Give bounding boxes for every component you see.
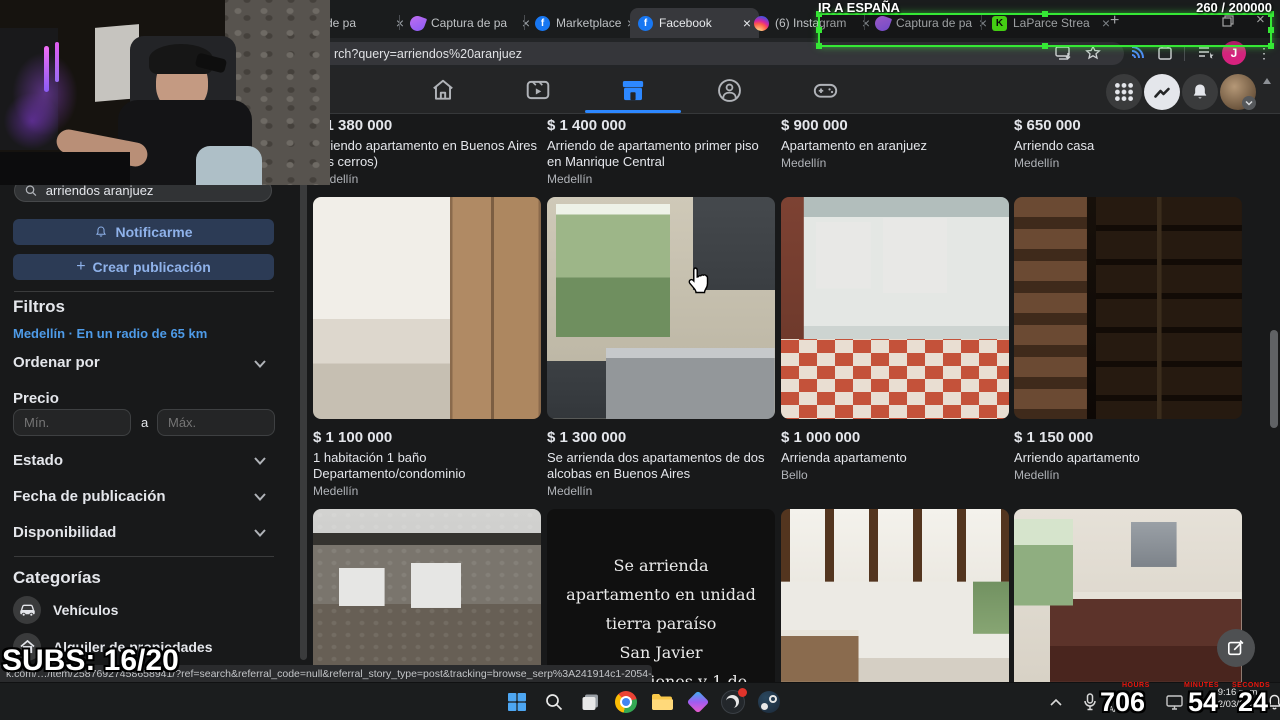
price-min-input[interactable] (13, 409, 131, 436)
taskbar-explorer-button[interactable] (648, 688, 676, 716)
disponibilidad-section[interactable]: Disponibilidad (13, 524, 116, 541)
tray-display-icon[interactable] (1160, 688, 1188, 716)
bell-outline-icon (94, 225, 108, 239)
listing-price: $ 1 150 000 (1014, 429, 1242, 447)
category-label: Vehículos (53, 602, 118, 618)
categories-title: Categorías (13, 568, 101, 588)
scroll-up-arrow[interactable] (1262, 72, 1272, 90)
sort-by-section[interactable]: Ordenar por (13, 354, 100, 371)
listing-title: 1 habitación 1 baño Departamento/condomi… (313, 450, 541, 482)
listing-title: Arriendo de apartamento primer piso en M… (547, 138, 775, 170)
steam-icon (758, 691, 780, 713)
listing-image[interactable] (313, 509, 541, 682)
tab-divider (399, 15, 400, 30)
listing-title: Arriendo casa (1014, 138, 1242, 154)
tab-facebook-active[interactable]: f Facebook × (630, 8, 759, 38)
nav-marketplace-tab-active[interactable] (585, 68, 681, 112)
selection-handle (816, 43, 822, 49)
knee-art (196, 146, 262, 185)
listing-card[interactable]: $ 1 380 000 Arriendo apartamento en Buen… (313, 117, 541, 186)
instagram-icon (754, 16, 769, 31)
tab-captura-2[interactable]: Captura de pa × (402, 8, 538, 38)
listing-image[interactable] (781, 197, 1009, 419)
screen: de pa × Captura de pa × f Marketplace: 1… (0, 0, 1280, 720)
listing-title: Arriendo apartamento en Buenos Aires (lo… (313, 138, 541, 170)
listing-price: $ 1 300 000 (547, 429, 775, 447)
listing-card[interactable]: $ 1 000 000 Arrienda apartamento Bello (781, 429, 1009, 482)
notify-label: Notificarme (115, 224, 192, 240)
nav-home-tab[interactable] (395, 68, 491, 112)
plus-icon: + (76, 258, 85, 276)
listing-price: $ 1 380 000 (313, 117, 541, 135)
text-card-line: tierra paraíso (606, 609, 717, 638)
category-vehicles[interactable]: Vehículos (13, 595, 275, 625)
messenger-button[interactable] (1144, 74, 1180, 110)
screenshot-app-icon (408, 13, 427, 32)
listing-price: $ 1 400 000 (547, 117, 775, 135)
webcam-overlay (0, 0, 330, 185)
text-card-line: apartamento en unidad (566, 580, 756, 609)
listing-card[interactable]: $ 1 150 000 Arriendo apartamento Medellí… (1014, 429, 1242, 482)
windows-logo-icon (507, 692, 527, 712)
obs-selection-box (818, 13, 1272, 47)
listing-location: Medellín (1014, 156, 1242, 170)
timer-seconds: 24 (1238, 687, 1268, 718)
chevron-down-icon[interactable] (253, 525, 269, 541)
facebook-icon: f (535, 16, 550, 31)
filters-title: Filtros (13, 297, 65, 317)
listing-image[interactable] (313, 197, 541, 419)
chevron-down-icon[interactable] (253, 356, 269, 372)
create-listing-button[interactable]: + Crear publicación (13, 254, 274, 280)
listing-image[interactable] (1014, 509, 1242, 682)
mouse-cursor (686, 266, 710, 299)
url-text: rch?query=arriendos%20aranjuez (334, 47, 522, 61)
page-scrollbar-thumb[interactable] (1270, 330, 1278, 428)
nav-gaming-tab[interactable] (777, 68, 873, 112)
notify-button[interactable]: Notificarme (13, 219, 274, 245)
facebook-icon: f (638, 16, 653, 31)
tab-label: Facebook (659, 16, 737, 30)
location-radius-link[interactable]: Medellín · En un radio de 65 km (13, 326, 207, 341)
listing-price: $ 900 000 (781, 117, 1009, 135)
listing-location: Medellín (313, 172, 541, 186)
fb-menu-grid-button[interactable] (1106, 74, 1142, 110)
listing-image[interactable] (781, 509, 1009, 682)
listing-location: Bello (781, 468, 1009, 482)
text-card-line: Se arrienda (613, 551, 708, 580)
notification-dot (738, 688, 747, 697)
profile-chevron-badge (1242, 96, 1256, 110)
chevron-down-icon[interactable] (253, 453, 269, 469)
chrome-icon (615, 691, 637, 713)
listing-location: Medellín (547, 172, 775, 186)
listing-image[interactable] (547, 197, 775, 419)
start-button[interactable] (503, 688, 531, 716)
tab-captura-1[interactable]: de pa × (318, 8, 412, 38)
messenger-bolt-icon (1152, 82, 1172, 102)
car-icon (13, 596, 41, 624)
nav-groups-tab[interactable] (681, 68, 777, 112)
listing-location: Medellín (1014, 468, 1242, 482)
listing-card[interactable]: $ 650 000 Arriendo casa Medellín (1014, 117, 1242, 170)
taskbar-app-diamond-button[interactable] (684, 688, 712, 716)
headset-glow-art (4, 92, 60, 150)
listing-title: Apartamento en aranjuez (781, 138, 1009, 154)
toolbar-divider (1184, 46, 1185, 61)
edit-pencil-icon (1227, 639, 1245, 657)
listing-price: $ 650 000 (1014, 117, 1242, 135)
subs-counter-overlay: SUBS: 16/20 (2, 644, 179, 678)
tab-divider (524, 15, 525, 30)
listing-location: Medellín (313, 484, 541, 498)
diamond-app-icon (687, 691, 710, 714)
listing-price: $ 1 000 000 (781, 429, 1009, 447)
folder-icon (651, 693, 673, 711)
taskbar-chrome-button[interactable] (612, 688, 640, 716)
tab-marketplace[interactable]: f Marketplace: 1 × (527, 8, 643, 38)
listing-title: Arriendo apartamento (1014, 450, 1242, 466)
taskbar-obs-button[interactable] (719, 688, 747, 716)
listing-card[interactable]: $ 900 000 Apartamento en aranjuez Medell… (781, 117, 1009, 170)
taskbar-search-button[interactable] (540, 688, 568, 716)
listing-card[interactable]: $ 1 300 000 Se arrienda dos apartamentos… (547, 429, 775, 498)
listing-price: $ 1 100 000 (313, 429, 541, 447)
search-icon (25, 184, 37, 197)
selection-handle (1268, 27, 1274, 33)
task-view-button[interactable] (576, 688, 604, 716)
tab-label: de pa (326, 16, 390, 30)
stream-goal-text: IR A ESPAÑA (818, 0, 900, 15)
text-card-line: San Javier (619, 638, 702, 667)
selection-handle (1042, 11, 1048, 17)
notifications-button[interactable] (1182, 74, 1218, 110)
tab-label: Captura de pa (431, 16, 516, 30)
search-icon (545, 693, 563, 711)
sidebar-scrollbar[interactable] (300, 160, 307, 660)
price-to-label: a (141, 415, 148, 430)
compose-floating-button[interactable] (1217, 629, 1255, 667)
price-max-input[interactable] (157, 409, 275, 436)
listing-card[interactable]: $ 1 100 000 1 habitación 1 baño Departam… (313, 429, 541, 498)
obs-icon (721, 690, 745, 714)
listing-title: Arrienda apartamento (781, 450, 1009, 466)
grid-menu-icon (1115, 83, 1133, 101)
selection-handle (1042, 43, 1048, 49)
nav-watch-tab[interactable] (490, 68, 586, 112)
taskbar-steam-button[interactable] (755, 688, 783, 716)
create-label: Crear publicación (93, 259, 211, 275)
tray-expand-chevron[interactable] (1042, 688, 1070, 716)
listing-title: Se arrienda dos apartamentos de dos alco… (547, 450, 775, 482)
stream-goal-counter: 260 / 200000 (1150, 0, 1272, 15)
listing-card[interactable]: $ 1 400 000 Arriendo de apartamento prim… (547, 117, 775, 186)
timer-minutes: 54 (1188, 687, 1218, 718)
listing-location: Medellín (781, 156, 1009, 170)
task-view-icon (581, 693, 600, 712)
listing-location: Medellín (547, 484, 775, 498)
listing-image[interactable] (1014, 197, 1242, 419)
bell-icon (1190, 82, 1210, 102)
sidebar-divider (14, 556, 274, 557)
sidebar-divider (14, 291, 274, 292)
led-strip-art (44, 46, 49, 92)
chevron-down-icon[interactable] (253, 489, 269, 505)
desk-art (0, 152, 130, 185)
led-strip-art (55, 42, 59, 82)
fecha-publicacion-section[interactable]: Fecha de publicación (13, 488, 166, 505)
nav-active-underline (585, 110, 681, 113)
selection-handle (816, 27, 822, 33)
estado-section[interactable]: Estado (13, 452, 63, 469)
tab-label: Marketplace: 1 (556, 16, 621, 30)
timer-hours: 706 (1100, 687, 1145, 718)
price-label: Precio (13, 390, 59, 407)
selection-handle (1268, 43, 1274, 49)
